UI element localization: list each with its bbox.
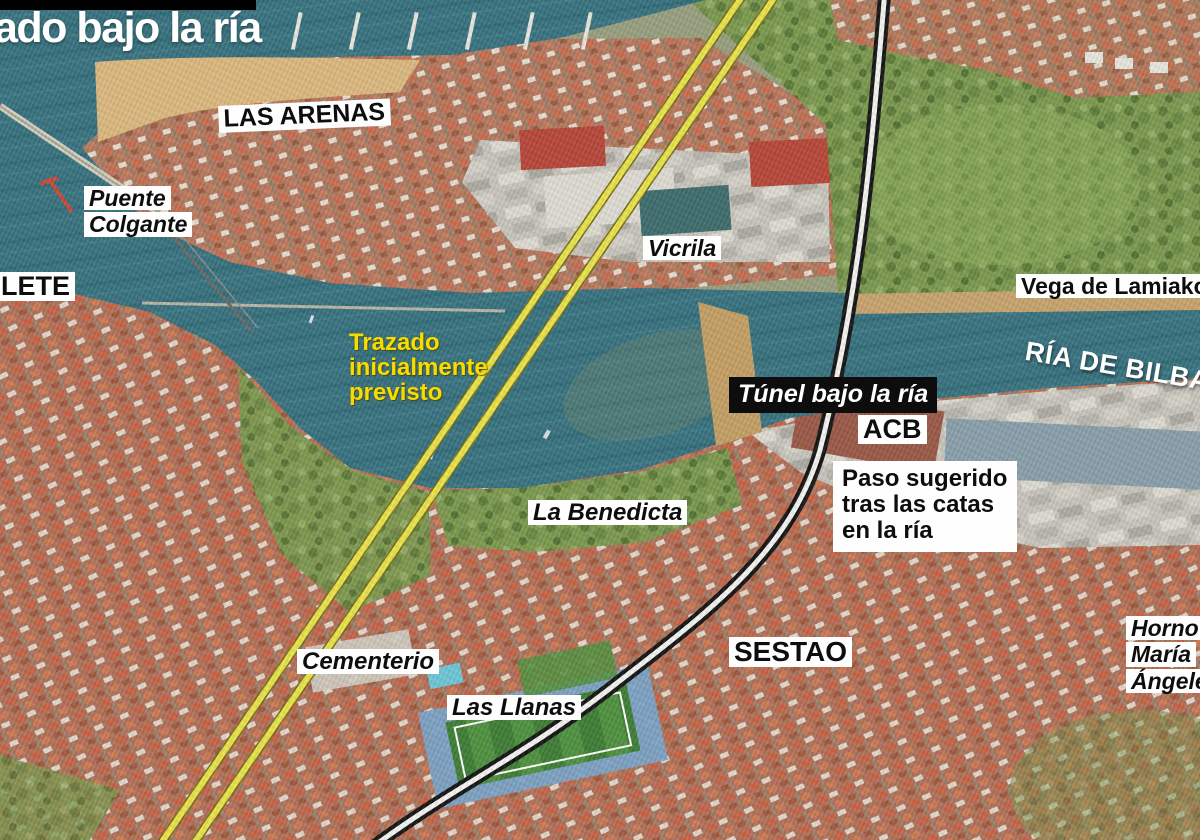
- label-la-benedicta: La Benedicta: [528, 500, 687, 527]
- label-horno-maria-angeles: Horno María Ángeles: [1126, 616, 1200, 695]
- label-cementerio: Cementerio: [297, 649, 439, 676]
- suggested-route-label: Paso sugerido tras las catas en la ría: [833, 461, 1017, 552]
- label-vicrila: Vicrila: [643, 236, 721, 262]
- factory-red-shed: [519, 126, 606, 170]
- label-acb: ACB: [858, 415, 927, 446]
- label-sestao: SESTAO: [729, 637, 852, 669]
- label-puente-colgante: Puente Colgante: [84, 186, 192, 239]
- field-lamiako: [860, 105, 1140, 265]
- factory-red-shed-2: [749, 138, 831, 187]
- factory-teal-shed: [639, 185, 732, 236]
- tunnel-label: Túnel bajo la ría: [729, 377, 937, 413]
- headline: ado bajo la ría: [0, 6, 261, 51]
- infographic-map: ado bajo la ría LAS ARENAS Puente Colgan…: [0, 0, 1200, 840]
- planned-route-label: Trazado inicialmente previsto: [349, 331, 488, 406]
- label-vega-de-lamiako: Vega de Lamiako: [1016, 274, 1200, 300]
- label-portugalete-partial: LETE: [0, 272, 75, 303]
- label-las-llanas: Las Llanas: [447, 695, 581, 722]
- aerial-map: [0, 0, 1200, 840]
